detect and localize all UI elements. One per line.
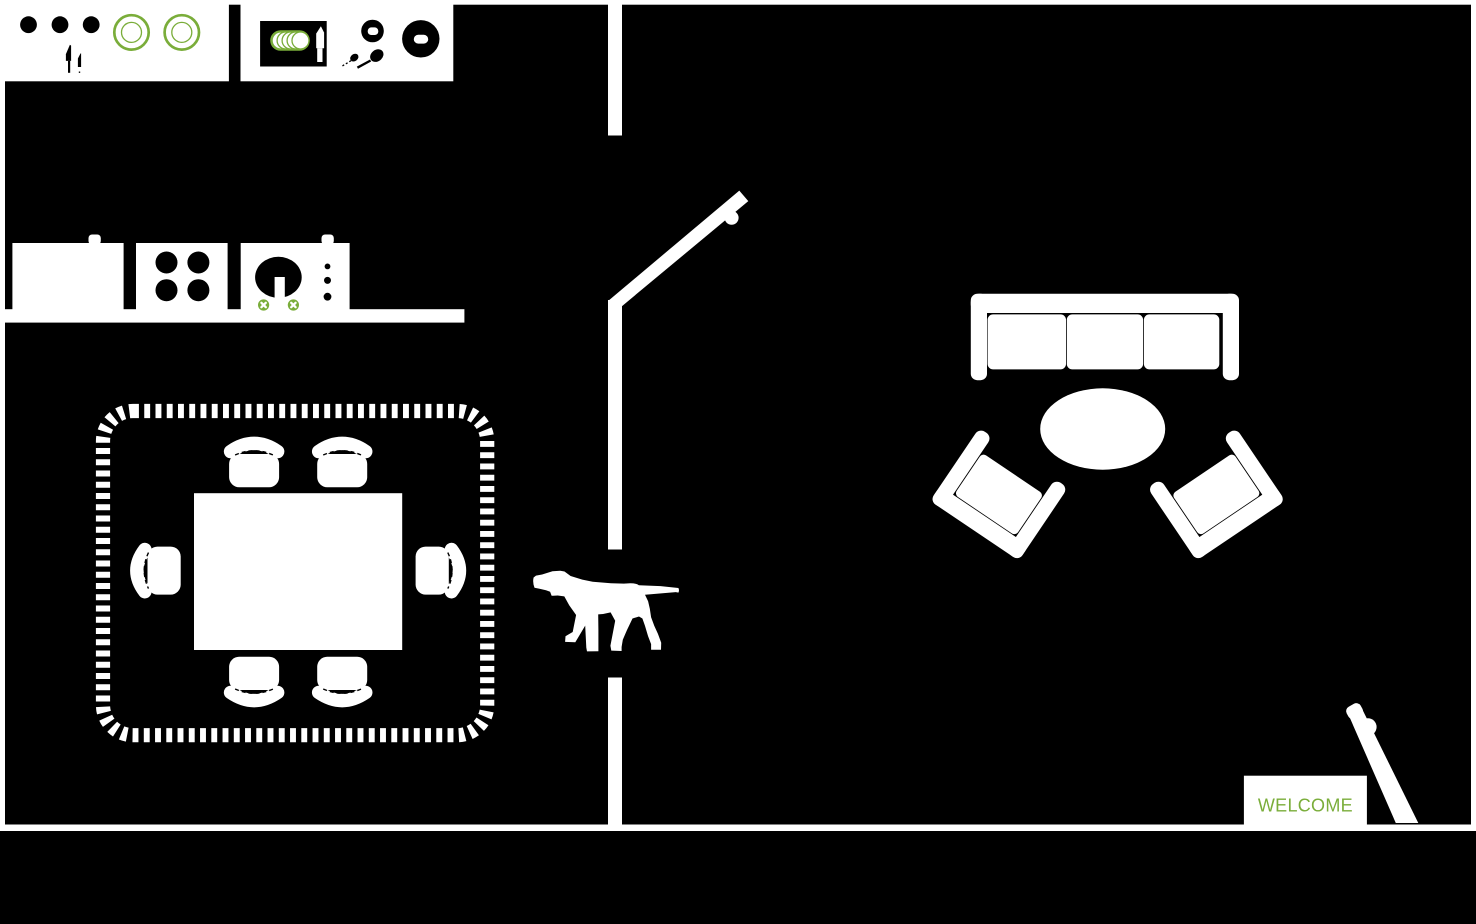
- svg-text:WELCOME: WELCOME: [1258, 796, 1353, 816]
